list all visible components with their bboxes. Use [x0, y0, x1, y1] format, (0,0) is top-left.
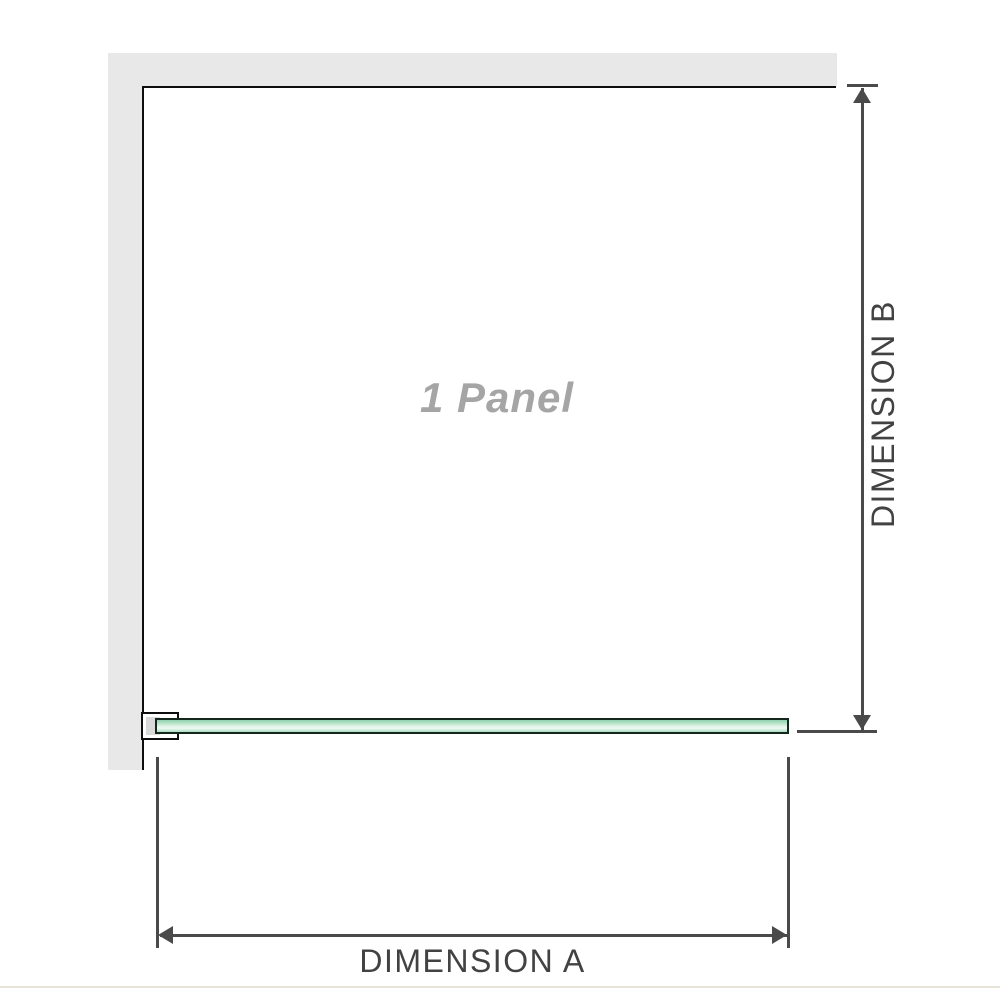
dim-a-extension-left [156, 757, 159, 948]
dim-b-arrow-up-icon [853, 88, 871, 103]
glass-panel [155, 718, 789, 734]
dim-b-line [861, 88, 864, 731]
wall-left-bar [108, 53, 142, 770]
dimension-diagram: 1 Panel DIMENSION B DIMENSION A [0, 0, 1000, 1000]
dim-a-line [160, 934, 787, 937]
wall-top-bar [108, 53, 837, 86]
panel-label: 1 Panel [150, 372, 844, 424]
dim-a-label: DIMENSION A [157, 944, 788, 978]
dim-b-tick-bottom [797, 730, 877, 733]
dim-b-arrow-down-icon [853, 715, 871, 730]
dim-a-arrow-right-icon [772, 926, 787, 944]
dim-b-tick-top [847, 84, 878, 87]
panel-outline [142, 86, 836, 770]
dim-a-extension-right [787, 757, 790, 948]
dim-a-arrow-left-icon [158, 926, 173, 944]
floor-line [0, 986, 1000, 988]
dim-b-label: DIMENSION B [866, 264, 900, 564]
